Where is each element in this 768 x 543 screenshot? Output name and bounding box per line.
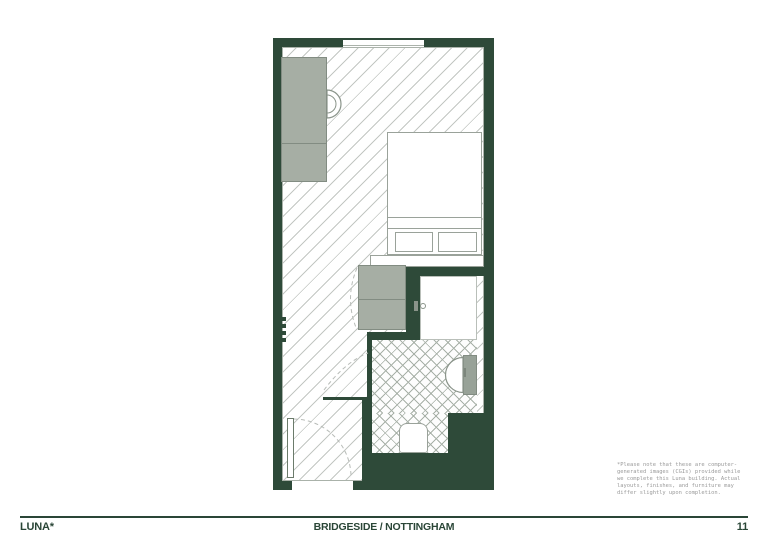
disclaimer-line: layouts, finishes, and furniture may [617,483,755,490]
wardrobe-door-arc [351,268,358,330]
disclaimer-line: generated images (CGIs) provided while [617,469,755,476]
disclaimer-line: differ slightly upon completion. [617,490,755,497]
footer-divider [20,516,748,518]
sink-basin [446,358,463,393]
bathroom-door-swing-arc [324,353,368,390]
brochure-page: *Please note that these are computer- ge… [0,0,768,543]
disclaimer-note: *Please note that these are computer- ge… [617,462,755,497]
disclaimer-line: we complete this Luna building. Actual [617,476,755,483]
project-title: BRIDGESIDE / NOTTINGHAM [0,521,768,533]
desk-chair [327,90,341,118]
disclaimer-line: *Please note that these are computer- [617,462,755,469]
entry-door-swing-arc [294,419,351,478]
page-number: 11 [737,521,748,533]
